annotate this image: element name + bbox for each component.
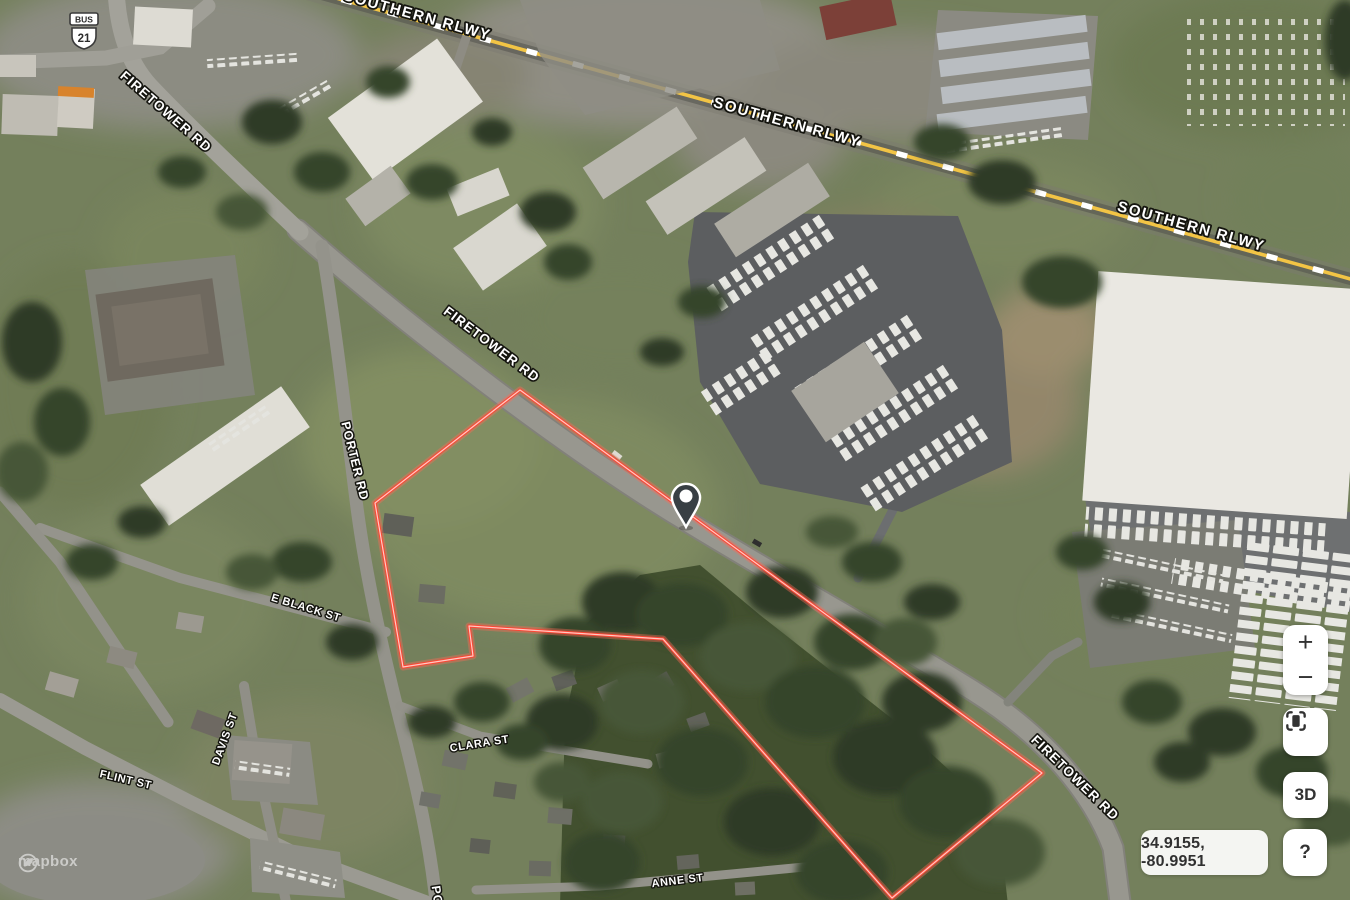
route-shield-banner: BUS — [75, 15, 93, 25]
fit-bounds-button[interactable] — [1283, 708, 1328, 756]
route-shield-bus-21: BUS 21 — [70, 13, 98, 49]
mapbox-logo-icon — [18, 853, 38, 873]
route-shield-number: 21 — [78, 33, 91, 45]
zoom-out-button[interactable]: − — [1283, 660, 1328, 695]
viewfinder-icon — [1283, 708, 1309, 734]
3d-toggle-button[interactable]: 3D — [1283, 772, 1328, 818]
satellite-canvas: SOUTHERN RLWY SOUTHERN RLWY SOUTHERN RLW… — [0, 0, 1350, 900]
zoom-control: + − — [1283, 625, 1328, 695]
map-viewport[interactable]: SOUTHERN RLWY SOUTHERN RLWY SOUTHERN RLW… — [0, 0, 1350, 900]
help-button[interactable]: ? — [1283, 829, 1327, 876]
coordinates-badge: 34.9155, -80.9951 — [1141, 830, 1268, 875]
zoom-in-button[interactable]: + — [1283, 625, 1328, 660]
mapbox-attribution[interactable]: mapbox — [18, 853, 78, 870]
road-label-porter-rd-partial: PO — [429, 885, 446, 900]
road-label-firetower-rd-3: FIRETOWER RD — [1028, 732, 1122, 823]
